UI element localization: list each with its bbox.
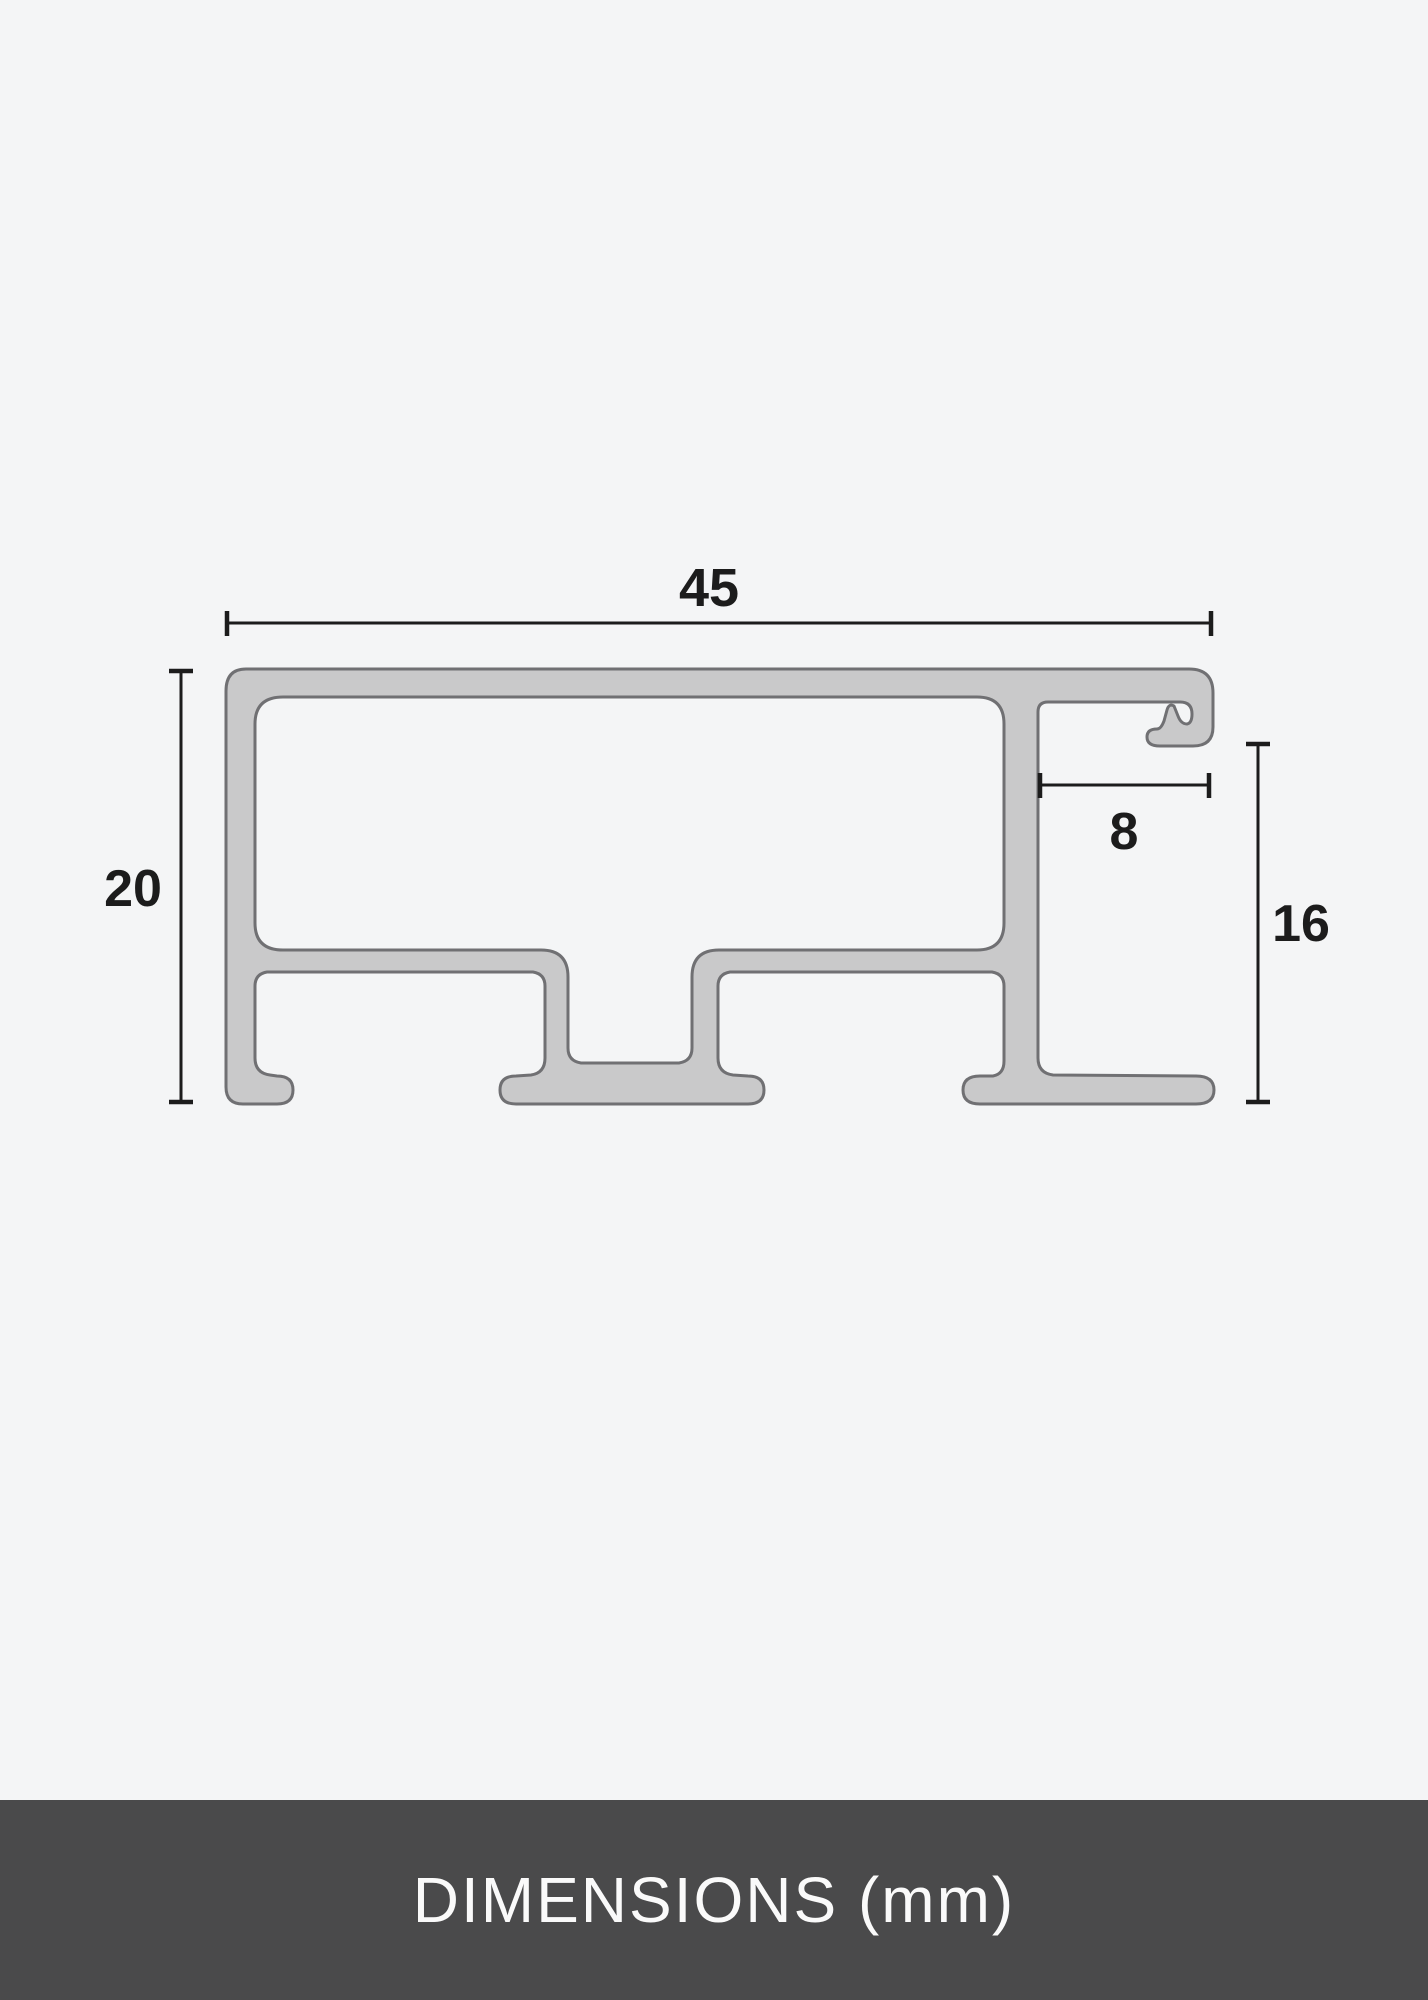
dimension-rabbet-width: 8: [1040, 773, 1209, 861]
dimension-rabbet-height: 16: [1246, 744, 1330, 1102]
dimension-overall-height: 20: [104, 671, 193, 1102]
profile-cross-section-diagram: 45 20 8 16: [0, 0, 1428, 2000]
dimension-label-rabbet-width: 8: [1110, 803, 1139, 861]
footer-caption-label: DIMENSIONS (mm): [413, 1863, 1015, 1937]
dimension-label-height: 20: [104, 860, 162, 918]
footer-caption-bar: DIMENSIONS (mm): [0, 1800, 1428, 2000]
dimension-label-rabbet-height: 16: [1272, 895, 1330, 953]
dimension-overall-width: 45: [227, 558, 1211, 636]
dimension-label-width: 45: [679, 558, 739, 618]
frame-profile-outline: [226, 669, 1214, 1104]
page: 45 20 8 16 DIMENSIONS (mm): [0, 0, 1428, 2000]
